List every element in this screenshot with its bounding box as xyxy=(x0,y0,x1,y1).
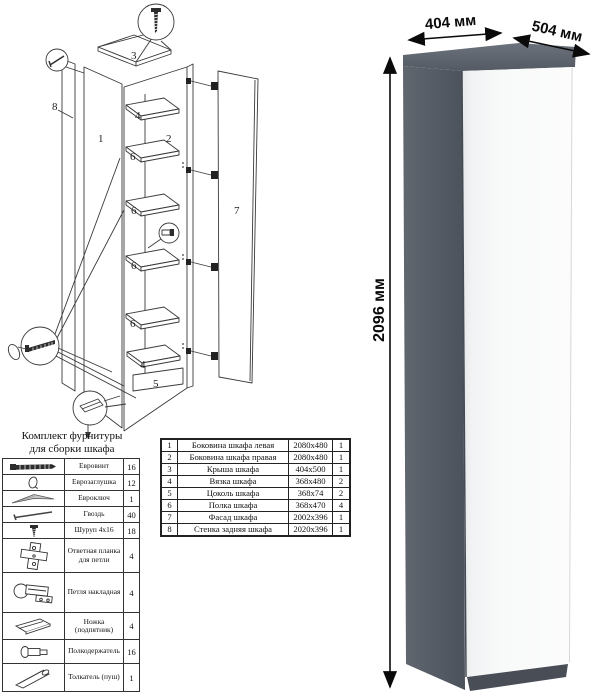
kit-item-qty: 16 xyxy=(124,459,140,475)
wardrobe-render xyxy=(403,43,576,691)
part-qty: 1 xyxy=(333,439,351,452)
parts-row: 1 Боковина шкафа левая 2080x480 1 xyxy=(161,439,350,452)
kit-row: Петля накладная 4 xyxy=(3,573,140,613)
part-name: Стенка задняя шкафа xyxy=(178,524,289,537)
part-label: 5 xyxy=(153,378,159,390)
part-label: 6 xyxy=(130,318,136,330)
part-label: 8 xyxy=(52,101,58,113)
wardrobe-side-panel xyxy=(403,66,465,690)
part-name: Крыша шкафа xyxy=(178,464,289,476)
width-dimension-line xyxy=(409,33,501,40)
diagram-door xyxy=(218,71,258,383)
euro-cap-icon xyxy=(8,476,60,489)
hinge-plate-icon xyxy=(8,541,60,571)
kit-item-name: Петля накладная xyxy=(65,573,124,613)
part-qty: 1 xyxy=(333,512,351,524)
kit-item-icon-cell xyxy=(3,613,65,640)
shelf-pin-icon xyxy=(8,642,60,662)
diagram-back-panel xyxy=(62,59,75,391)
parts-row: 5 Цоколь шкафа 368x74 2 xyxy=(161,488,350,500)
kit-item-icon-cell xyxy=(3,507,65,523)
parts-row: 4 Вязка шкафа 368x480 2 xyxy=(161,476,350,488)
kit-row: Шуруп 4x16 18 xyxy=(3,523,140,539)
kit-item-icon-cell xyxy=(3,459,65,475)
kit-item-icon-cell xyxy=(3,475,65,491)
part-name: Боковина шкафа левая xyxy=(178,439,289,452)
kit-heading-line1: Комплект фурнитуры xyxy=(8,430,136,443)
part-number: 4 xyxy=(161,476,178,488)
part-qty: 2 xyxy=(333,476,351,488)
part-size: 368x470 xyxy=(289,500,333,512)
part-label: 1 xyxy=(98,133,104,145)
part-number: 1 xyxy=(161,439,178,452)
part-number: 7 xyxy=(161,512,178,524)
part-name: Вязка шкафа xyxy=(178,476,289,488)
kit-row: Ответная планка для петли 4 xyxy=(3,539,140,573)
exploded-diagram xyxy=(6,4,258,439)
kit-heading: Комплект фурнитуры для сборки шкафа xyxy=(8,430,136,455)
kit-row: Еврозаглушка 12 xyxy=(3,475,140,491)
part-name: Боковина шкафа правая xyxy=(178,452,289,464)
kit-item-qty: 18 xyxy=(124,523,140,539)
kit-item-name: Гвоздь xyxy=(65,507,124,523)
kit-row: Гвоздь 40 xyxy=(3,507,140,523)
part-size: 2002x396 xyxy=(289,512,333,524)
part-label: 3 xyxy=(131,50,137,62)
part-qty: 1 xyxy=(333,452,351,464)
push-latch-icon xyxy=(8,666,60,690)
part-label: 7 xyxy=(234,205,240,217)
hex-key-icon xyxy=(8,492,60,505)
parts-row: 6 Полка шкафа 368x470 4 xyxy=(161,500,350,512)
part-name: Фасад шкафа xyxy=(178,512,289,524)
kit-row: Евроключ 1 xyxy=(3,491,140,507)
euro-screw-icon xyxy=(8,460,60,473)
kit-row: Полкодержатель 16 xyxy=(3,640,140,664)
part-number: 8 xyxy=(161,524,178,537)
wardrobe-top-panel xyxy=(403,43,576,71)
assembly-instruction-sheet: 3 8 1 4 2 6 6 6 6 7 4 5 404 мм 504 мм 20… xyxy=(0,0,601,700)
part-name: Цоколь шкафа xyxy=(178,488,289,500)
kit-item-qty: 1 xyxy=(124,491,140,507)
screw-icon xyxy=(8,524,60,538)
kit-item-icon-cell xyxy=(3,573,65,613)
part-size: 368x74 xyxy=(289,488,333,500)
kit-item-qty: 12 xyxy=(124,475,140,491)
part-qty: 2 xyxy=(333,488,351,500)
part-size: 2080x480 xyxy=(289,452,333,464)
kit-item-icon-cell xyxy=(3,523,65,539)
kit-item-icon-cell xyxy=(3,664,65,692)
kit-item-name: Толкатель (пуш) xyxy=(65,664,124,692)
part-qty: 1 xyxy=(333,464,351,476)
part-label: 6 xyxy=(130,151,136,163)
part-label: 6 xyxy=(131,205,137,217)
parts-row: 3 Крыша шкафа 404x500 1 xyxy=(161,464,350,476)
part-label: 6 xyxy=(131,260,137,272)
wardrobe-door xyxy=(463,67,573,677)
kit-item-qty: 1 xyxy=(124,664,140,692)
kit-item-qty: 4 xyxy=(124,539,140,573)
kit-item-icon-cell xyxy=(3,539,65,573)
kit-row: Толкатель (пуш) 1 xyxy=(3,664,140,692)
part-size: 2080x480 xyxy=(289,439,333,452)
parts-row: 2 Боковина шкафа правая 2080x480 1 xyxy=(161,452,350,464)
kit-item-name: Ножка (подпятник) xyxy=(65,613,124,640)
part-label: 4 xyxy=(135,110,141,122)
shelf-pin-callout-circle xyxy=(148,223,179,248)
kit-row: Евровинт 16 xyxy=(3,459,140,475)
kit-item-qty: 4 xyxy=(124,573,140,613)
part-qty: 1 xyxy=(333,524,351,537)
screw-callout-circle xyxy=(138,4,174,40)
parts-table: 1 Боковина шкафа левая 2080x480 1 2 Боко… xyxy=(160,438,351,537)
kit-item-qty: 16 xyxy=(124,640,140,664)
parts-row: 7 Фасад шкафа 2002x396 1 xyxy=(161,512,350,524)
parts-row: 8 Стенка задняя шкафа 2020x396 1 xyxy=(161,524,350,537)
kit-item-name: Полкодержатель xyxy=(65,640,124,664)
part-qty: 4 xyxy=(333,500,351,512)
part-number: 2 xyxy=(161,452,178,464)
part-number: 5 xyxy=(161,488,178,500)
kit-item-name: Ответная планка для петли xyxy=(65,539,124,573)
kit-item-name: Еврозаглушка xyxy=(65,475,124,491)
part-name: Полка шкафа xyxy=(178,500,289,512)
height-dimension-label: 2096 мм xyxy=(371,278,388,342)
kit-item-name: Евроключ xyxy=(65,491,124,507)
shelf-pin-glyph-icon xyxy=(162,229,174,236)
hinge-icon xyxy=(8,575,60,611)
foot-icon xyxy=(8,615,60,637)
depth-dimension-label: 504 мм xyxy=(530,18,584,46)
kit-item-icon-cell xyxy=(3,491,65,507)
furniture-kit-table: Евровинт 16 Еврозаглушка 12 Евроключ 1 xyxy=(2,458,140,692)
kit-item-name: Евровинт xyxy=(65,459,124,475)
kit-row: Ножка (подпятник) 4 xyxy=(3,613,140,640)
width-dimension-label: 404 мм xyxy=(424,12,477,33)
part-size: 404x500 xyxy=(289,464,333,476)
part-label: 2 xyxy=(166,133,172,145)
kit-item-qty: 40 xyxy=(124,507,140,523)
kit-item-name: Шуруп 4x16 xyxy=(65,523,124,539)
nail-icon xyxy=(8,508,60,521)
part-size: 2020x396 xyxy=(289,524,333,537)
kit-heading-line2: для сборки шкафа xyxy=(8,443,136,456)
kit-item-icon-cell xyxy=(3,640,65,664)
kit-item-qty: 4 xyxy=(124,613,140,640)
part-size: 368x480 xyxy=(289,476,333,488)
part-number: 3 xyxy=(161,464,178,476)
part-number: 6 xyxy=(161,500,178,512)
part-label: 4 xyxy=(140,359,146,371)
hinge-markers xyxy=(182,78,218,360)
